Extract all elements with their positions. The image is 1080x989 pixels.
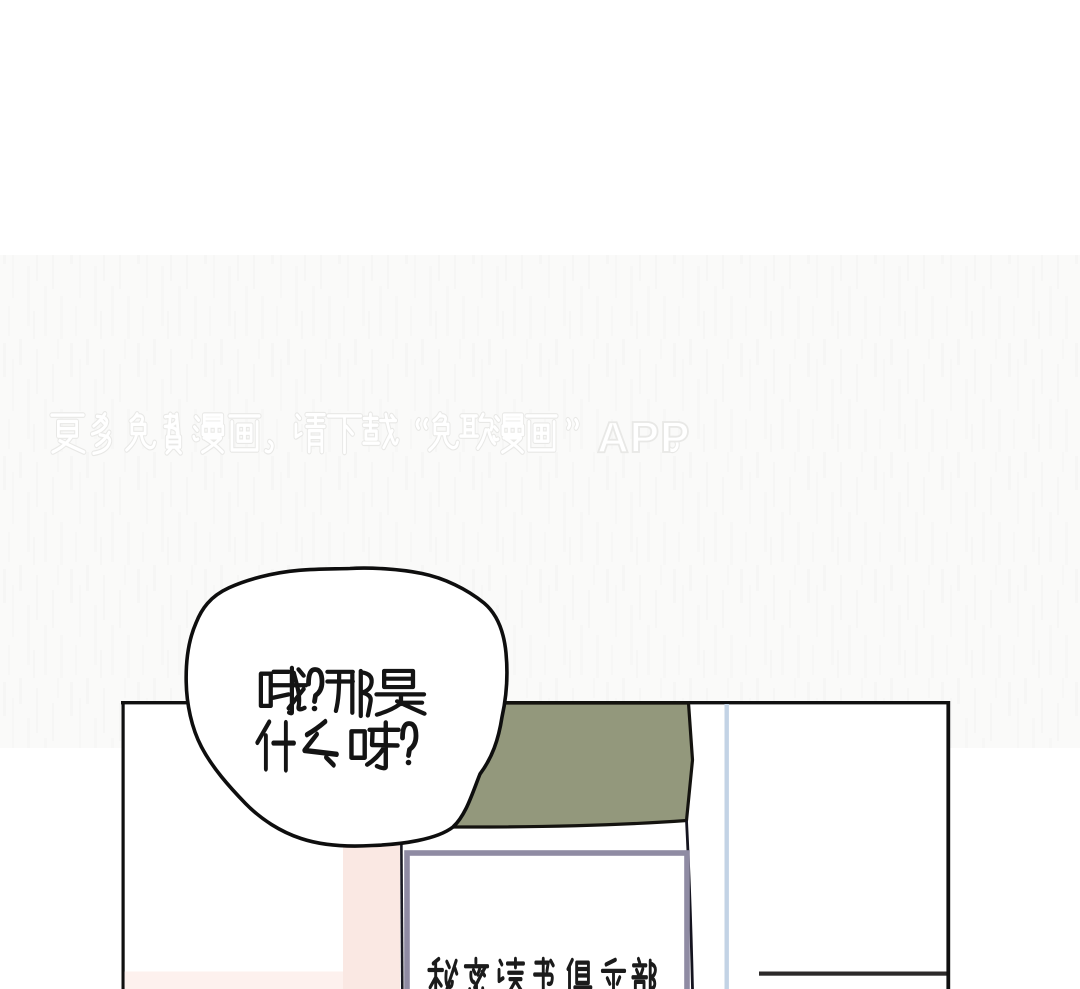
- svg-text:APP: APP: [597, 413, 690, 462]
